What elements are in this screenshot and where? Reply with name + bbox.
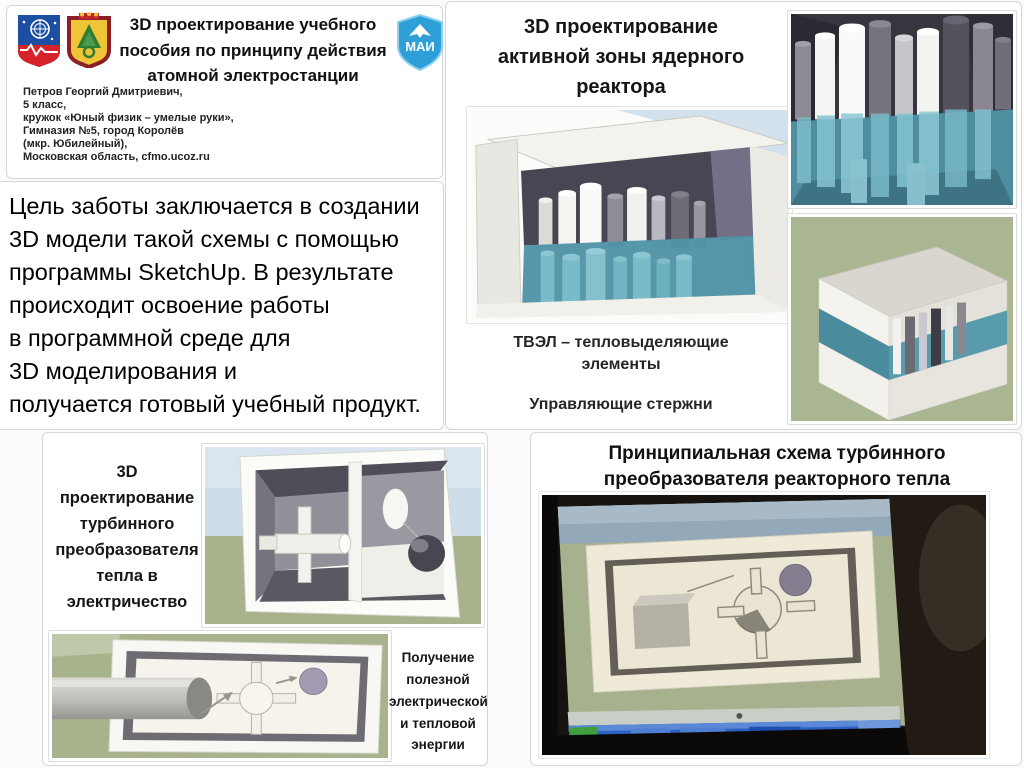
author-info: Петров Георгий Дмитриевич, 5 класс, круж…	[23, 86, 403, 164]
fuel-rods-closeup-image	[787, 10, 1017, 209]
reactor-cutaway-image	[466, 106, 793, 324]
energy-caption: Получение полезной электрической и тепло…	[389, 647, 487, 756]
sketchup-schematic	[586, 531, 879, 692]
reactor-panel: 3D проектирование активной зоны ядерного…	[445, 1, 1022, 430]
turbine-panel: 3D проектирование турбинного преобразова…	[42, 432, 488, 766]
goal-text: Цель заботы заключается в создании 3D мо…	[9, 190, 439, 421]
mai-logo-icon: МАИ	[395, 14, 445, 72]
mai-label: МАИ	[405, 39, 435, 54]
turbine-side-image	[48, 630, 392, 762]
monitor-photo	[538, 491, 990, 759]
fuel-elements-caption: ТВЭЛ – тепловыделяющие элементы	[451, 332, 791, 375]
turbine-room-image	[201, 443, 485, 628]
reactor-vessel-image	[787, 213, 1017, 425]
goal-card: Цель заботы заключается в создании 3D мо…	[0, 181, 444, 430]
korolev-coat-of-arms-icon	[17, 14, 61, 68]
header-card: 3D проектирование учебного пособия по пр…	[6, 5, 443, 179]
yubileyny-coat-of-arms-icon	[65, 12, 113, 68]
poster-title: 3D проектирование учебного пособия по пр…	[113, 12, 393, 89]
turbine-panel-title: 3D проектирование турбинного преобразова…	[47, 459, 207, 615]
control-rods-caption: Управляющие стержни	[451, 394, 791, 416]
reactor-panel-title: 3D проектирование активной зоны ядерного…	[451, 12, 791, 102]
scheme-panel: Принципиальная схема турбинного преобраз…	[530, 432, 1022, 766]
poster-page: 3D проектирование учебного пособия по пр…	[0, 0, 1024, 768]
scheme-panel-title: Принципиальная схема турбинного преобраз…	[539, 441, 1015, 492]
